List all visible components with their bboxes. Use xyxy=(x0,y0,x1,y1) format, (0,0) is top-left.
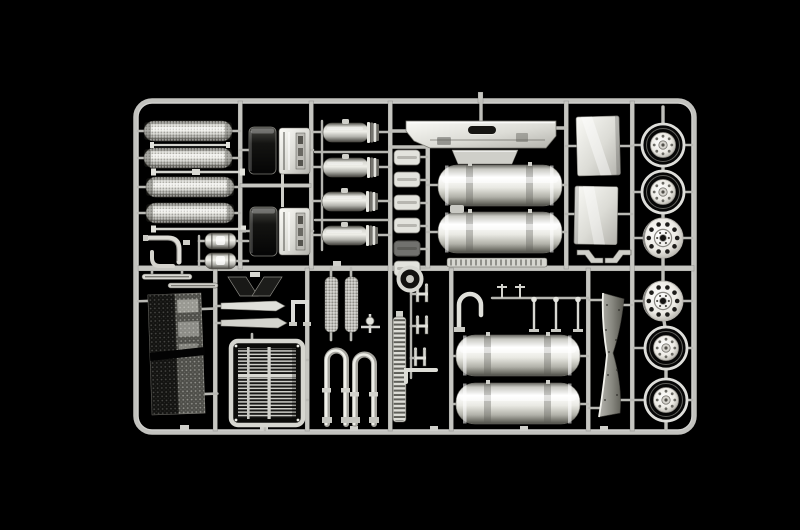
vignette-overlay xyxy=(0,0,800,530)
model-kit-sprue-photo xyxy=(0,0,800,530)
photo-stage xyxy=(0,0,800,530)
